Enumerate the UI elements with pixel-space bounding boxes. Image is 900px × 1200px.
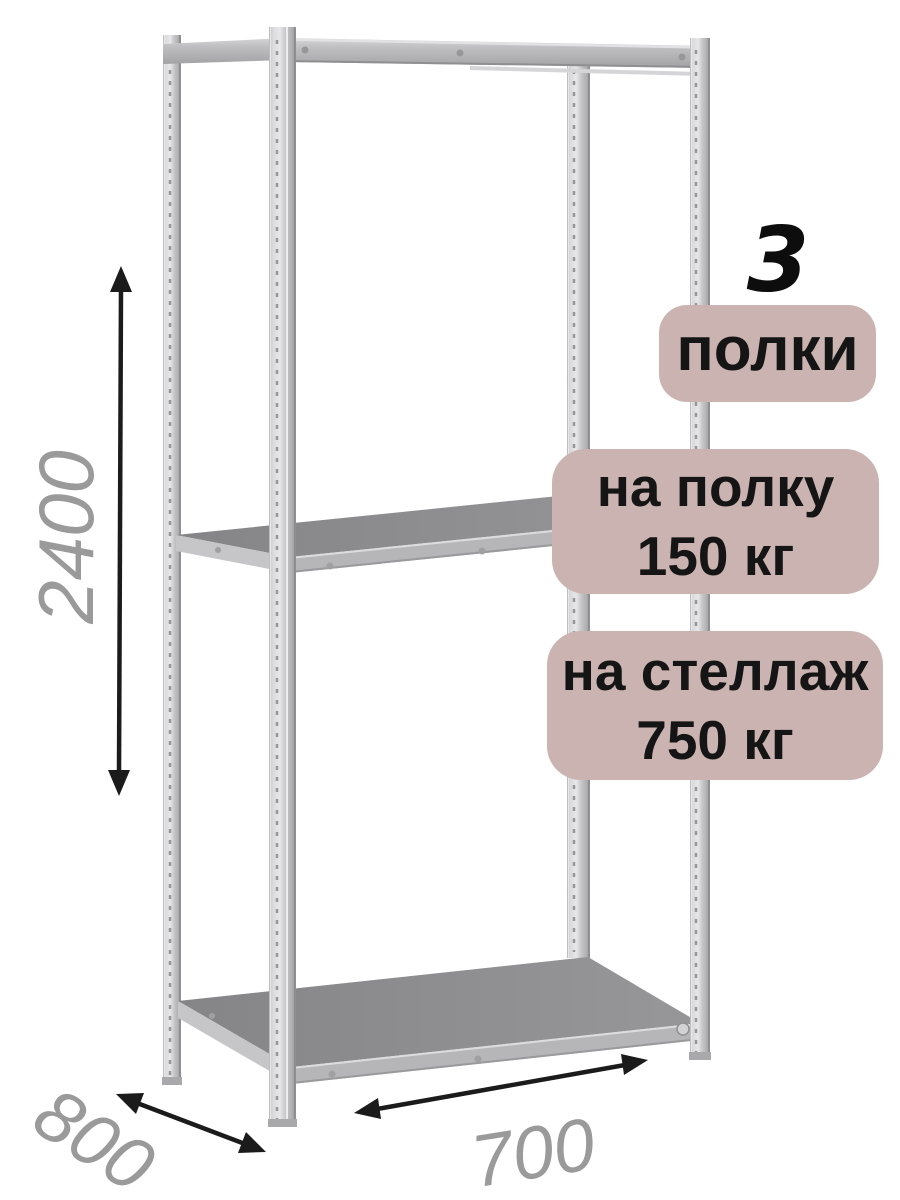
rack-load-line2: 750 кг	[636, 706, 793, 774]
rack-top-shelf	[163, 38, 705, 74]
bolt	[329, 1071, 336, 1078]
top-shelf-side-beam	[163, 38, 285, 64]
shelf-load-badge: на полку 150 кг	[552, 449, 879, 594]
bolt	[327, 563, 334, 570]
width-dimension-label: 700	[466, 1107, 600, 1199]
rack-post-front-left	[268, 27, 297, 1127]
bolt	[209, 1013, 215, 1019]
bolt	[215, 547, 221, 553]
post-foot	[689, 1052, 711, 1060]
rack-load-line1: на стеллаж	[562, 637, 869, 705]
post-body	[163, 35, 181, 1085]
bolt	[479, 548, 486, 555]
post-foot	[162, 1077, 182, 1085]
shelf-count-label: полки	[676, 312, 858, 389]
bolt	[475, 1056, 482, 1063]
rack-post-rear-left	[162, 35, 182, 1085]
bolt	[302, 47, 309, 54]
corner-knob	[677, 1023, 689, 1035]
shelf-count-number: 3	[747, 215, 810, 305]
product-image: 2400 800 700 3 полки на полку 150 кг на …	[0, 0, 900, 1200]
shelving-rack-illustration	[0, 0, 900, 1200]
shelf-count-badge: полки	[659, 305, 876, 402]
height-dimension-label: 2400	[27, 450, 105, 624]
bolt	[457, 50, 464, 57]
height-dimension-arrow	[108, 266, 132, 796]
bolt	[679, 54, 686, 61]
post-foot	[268, 1119, 297, 1127]
rack-load-badge: на стеллаж 750 кг	[547, 631, 883, 780]
shelf-load-line1: на полку	[597, 453, 835, 521]
post-body	[269, 27, 296, 1127]
shelf-load-line2: 150 кг	[637, 522, 794, 590]
